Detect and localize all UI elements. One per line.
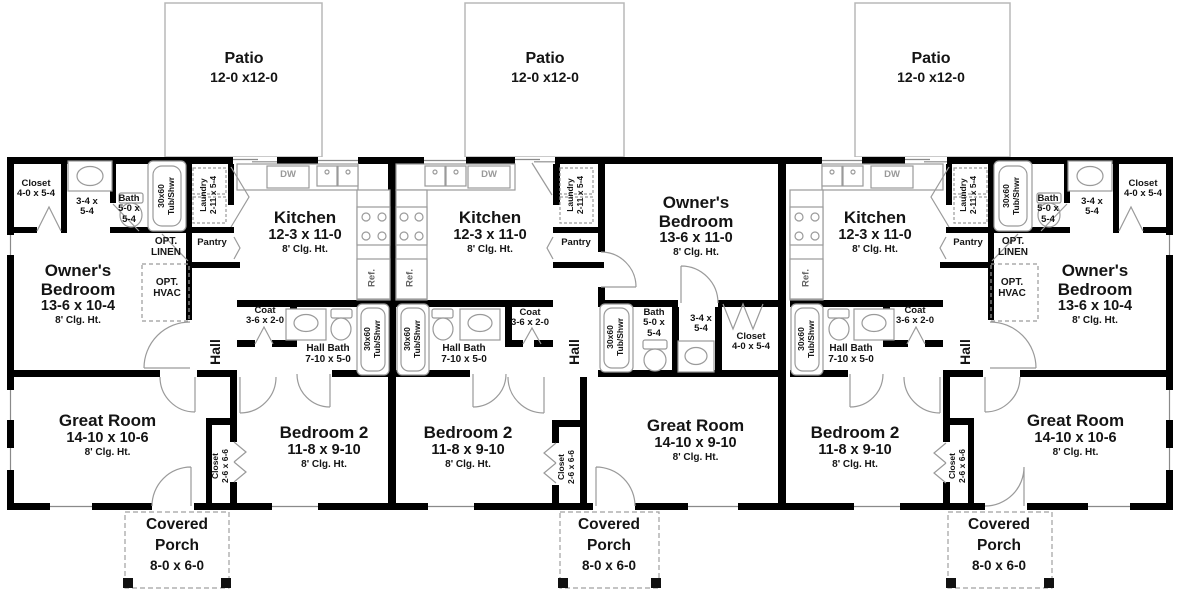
- patio-label-1: Patio 12-0 x12-0: [184, 49, 304, 87]
- room-dim: 14-10 x 10-6: [998, 431, 1153, 447]
- room-clg: 8' Clg. Ht.: [16, 315, 140, 326]
- u2-vanity-label: 3-4 x 5-4: [680, 314, 722, 335]
- u3-bedroom2-label: Bedroom 2 11-8 x 9-10 8' Clg. Ht.: [793, 424, 917, 470]
- fixture-name: Ref.: [802, 269, 813, 287]
- room-clg: 8' Clg. Ht.: [998, 447, 1153, 458]
- room-clg: 8' Clg. Ht.: [1033, 315, 1157, 326]
- u1-opt-linen-label: OPT. LINEN: [144, 236, 188, 258]
- room-dim: 2-11 x 5-4: [209, 176, 219, 214]
- room-name: Owner's: [634, 194, 758, 213]
- floorplan: Patio 12-0 x12-0 Patio 12-0 x12-0 Patio …: [0, 0, 1180, 593]
- u3-ref-label: Ref.: [802, 269, 813, 287]
- room-dim: 12-3 x 11-0: [814, 228, 936, 244]
- room-dim: 5-4: [108, 215, 150, 225]
- room-name: Pantry: [552, 238, 600, 248]
- patio-label-2: Patio 12-0 x12-0: [485, 49, 605, 87]
- room-dim: 8-0 x 6-0: [125, 557, 229, 575]
- u1-great-room-label: Great Room 14-10 x 10-6 8' Clg. Ht.: [30, 412, 185, 458]
- room-name: Porch: [125, 536, 229, 557]
- room-dim: 12-3 x 11-0: [244, 228, 366, 244]
- room-dim: 5-4: [1027, 215, 1069, 225]
- opt: OPT.: [144, 236, 188, 247]
- u1-kitchen-label: Kitchen 12-3 x 11-0 8' Clg. Ht.: [244, 209, 366, 255]
- room-dim: 13-6 x 10-4: [1033, 299, 1157, 315]
- u1-hall-bath-label: Hall Bath 7-10 x 5-0: [294, 343, 362, 365]
- u2-great-room-label: Great Room 14-10 x 9-10 8' Clg. Ht.: [618, 417, 773, 463]
- room-dim: 14-10 x 9-10: [618, 436, 773, 452]
- room-dim: 5-4: [680, 324, 722, 334]
- patio-title: Patio: [184, 49, 304, 69]
- room-name: Bedroom: [1033, 281, 1157, 300]
- room-dim: 8-0 x 6-0: [558, 557, 660, 575]
- u1-bedroom2-label: Bedroom 2 11-8 x 9-10 8' Clg. Ht.: [262, 424, 386, 470]
- room-name: Pantry: [188, 238, 236, 248]
- room-dim: 13-6 x 10-4: [16, 299, 140, 315]
- opt: OPT.: [989, 277, 1035, 288]
- u2-ref-label: Ref.: [406, 269, 417, 287]
- u3-great-room-label: Great Room 14-10 x 10-6 8' Clg. Ht.: [998, 412, 1153, 458]
- u2-porch-label: Covered Porch 8-0 x 6-0: [558, 515, 660, 575]
- room-name: Hall Bath: [294, 343, 362, 354]
- fixture-name: Tub/Shwr: [1012, 177, 1022, 215]
- room-name: Bedroom 2: [406, 424, 530, 443]
- u3-opt-linen-label: OPT. LINEN: [991, 236, 1035, 258]
- patio-dim: 12-0 x12-0: [485, 69, 605, 87]
- u1-opt-hvac-label: OPT. HVAC: [144, 277, 190, 299]
- patio-dim: 12-0 x12-0: [871, 69, 991, 87]
- u2-hall-bath-label: Hall Bath 7-10 x 5-0: [430, 343, 498, 365]
- u2-hall-label: Hall: [566, 339, 582, 365]
- room-dim: 8-0 x 6-0: [946, 557, 1052, 575]
- room-dim: 7-10 x 5-0: [430, 354, 498, 365]
- u3-kitchen-label: Kitchen 12-3 x 11-0 8' Clg. Ht.: [814, 209, 936, 255]
- room-dim: 4-0 x 5-4: [1116, 189, 1170, 199]
- room-dim: 4-0 x 5-4: [10, 189, 62, 199]
- hvac: HVAC: [144, 288, 190, 299]
- room-dim: 2-6 x 6-6: [958, 449, 968, 483]
- room-name: Porch: [558, 536, 660, 557]
- patio-title: Patio: [871, 49, 991, 69]
- u2-bedroom2-closet-label: Closet 2-6 x 6-6: [557, 450, 577, 484]
- patio-label-3: Patio 12-0 x12-0: [871, 49, 991, 87]
- u2-laundry-label: Laundry 2-11 x 5-4: [566, 176, 586, 214]
- linen: LINEN: [991, 247, 1035, 258]
- room-dim: 2-11 x 5-4: [969, 176, 979, 214]
- fixture-name: Tub/Shwr: [373, 320, 383, 358]
- room-name: Bedroom 2: [262, 424, 386, 443]
- room-clg: 8' Clg. Ht.: [618, 452, 773, 463]
- u1-laundry-label: Laundry 2-11 x 5-4: [199, 176, 219, 214]
- u1-vanity-label: 3-4 x 5-4: [64, 197, 110, 218]
- u3-pantry-label: Pantry: [944, 238, 992, 248]
- u2-owner-closet-label: Closet 4-0 x 5-4: [724, 332, 778, 353]
- room-name: Covered: [125, 515, 229, 536]
- u1-owner-closet-label: Closet 4-0 x 5-4: [10, 179, 62, 200]
- patio-title: Patio: [485, 49, 605, 69]
- fixture-name: Tub/Shwr: [413, 320, 423, 358]
- fixture-name: Tub/Shwr: [167, 177, 177, 215]
- room-dim: 11-8 x 9-10: [793, 443, 917, 459]
- u3-bath-label: Bath 5-0 x 5-4: [1027, 194, 1069, 225]
- u3-coat-label: Coat 3-6 x 2-0: [889, 306, 941, 327]
- room-name: Porch: [946, 536, 1052, 557]
- u3-bedroom2-closet-label: Closet 2-6 x 6-6: [948, 449, 968, 483]
- room-name: Pantry: [944, 238, 992, 248]
- fixture-name: DW: [467, 170, 511, 180]
- room-dim: 5-4: [1069, 207, 1115, 217]
- u3-opt-hvac-label: OPT. HVAC: [989, 277, 1035, 299]
- room-name: Kitchen: [814, 209, 936, 228]
- hvac: HVAC: [989, 288, 1035, 299]
- fixture-name: Ref.: [406, 269, 417, 287]
- room-name: Covered: [946, 515, 1052, 536]
- room-name: Hall Bath: [430, 343, 498, 354]
- fixture-name: Tub/Shwr: [807, 320, 817, 358]
- u3-owner-closet-label: Closet 4-0 x 5-4: [1116, 179, 1170, 200]
- linen: LINEN: [144, 247, 188, 258]
- room-name: Owner's: [16, 262, 140, 281]
- room-name: Bedroom: [16, 281, 140, 300]
- room-clg: 8' Clg. Ht.: [30, 447, 185, 458]
- u2-owner-tub-label: 30x60 Tub/Shwr: [606, 318, 626, 356]
- room-clg: 8' Clg. Ht.: [262, 459, 386, 470]
- room-name: Hall Bath: [817, 343, 885, 354]
- room-name: Hall: [957, 339, 973, 365]
- room-name: Hall: [207, 339, 223, 365]
- room-dim: 5-4: [634, 329, 674, 339]
- room-name: Great Room: [30, 412, 185, 431]
- room-dim: 14-10 x 10-6: [30, 431, 185, 447]
- room-name: Owner's: [1033, 262, 1157, 281]
- room-dim: 12-3 x 11-0: [429, 228, 551, 244]
- room-dim: 3-6 x 2-0: [889, 316, 941, 326]
- fixture-name: Tub/Shwr: [616, 318, 626, 356]
- room-dim: 2-11 x 5-4: [576, 176, 586, 214]
- room-name: Hall: [566, 339, 582, 365]
- patio-dim: 12-0 x12-0: [184, 69, 304, 87]
- room-dim: 7-10 x 5-0: [294, 354, 362, 365]
- fixture-name: Ref.: [368, 269, 379, 287]
- room-name: Kitchen: [244, 209, 366, 228]
- room-dim: 5-4: [64, 207, 110, 217]
- u3-hall-bath-label: Hall Bath 7-10 x 5-0: [817, 343, 885, 365]
- room-dim: 3-6 x 2-0: [239, 316, 291, 326]
- u3-vanity-label: 3-4 x 5-4: [1069, 197, 1115, 218]
- porch-posts: [123, 578, 1054, 588]
- u2-bedroom2-label: Bedroom 2 11-8 x 9-10 8' Clg. Ht.: [406, 424, 530, 470]
- u3-owner-tub-label: 30x60 Tub/Shwr: [1002, 177, 1022, 215]
- room-clg: 8' Clg. Ht.: [793, 459, 917, 470]
- fixture-name: DW: [870, 170, 914, 180]
- u2-kitchen-label: Kitchen 12-3 x 11-0 8' Clg. Ht.: [429, 209, 551, 255]
- room-name: Kitchen: [429, 209, 551, 228]
- room-name: Bedroom: [634, 213, 758, 232]
- u2-owners-bedroom-label: Owner's Bedroom 13-6 x 11-0 8' Clg. Ht.: [634, 194, 758, 258]
- room-clg: 8' Clg. Ht.: [634, 247, 758, 258]
- u2-hall-tub-label: 30x60 Tub/Shwr: [403, 320, 423, 358]
- room-dim: 11-8 x 9-10: [406, 443, 530, 459]
- u2-dw-label: DW: [467, 170, 511, 180]
- room-name: Bedroom 2: [793, 424, 917, 443]
- u1-owners-bedroom-label: Owner's Bedroom 13-6 x 10-4 8' Clg. Ht.: [16, 262, 140, 326]
- u1-owner-tub-label: 30x60 Tub/Shwr: [157, 177, 177, 215]
- fixture-name: DW: [266, 170, 310, 180]
- room-clg: 8' Clg. Ht.: [814, 244, 936, 255]
- u3-laundry-label: Laundry 2-11 x 5-4: [959, 176, 979, 214]
- room-dim: 2-6 x 6-6: [567, 450, 577, 484]
- room-name: Covered: [558, 515, 660, 536]
- u2-pantry-label: Pantry: [552, 238, 600, 248]
- opt: OPT.: [144, 277, 190, 288]
- room-clg: 8' Clg. Ht.: [429, 244, 551, 255]
- u3-hall-label: Hall: [957, 339, 973, 365]
- u3-dw-label: DW: [870, 170, 914, 180]
- room-dim: 3-6 x 2-0: [506, 318, 554, 328]
- u2-bath-label: Bath 5-0 x 5-4: [634, 308, 674, 339]
- room-clg: 8' Clg. Ht.: [244, 244, 366, 255]
- room-dim: 13-6 x 11-0: [634, 231, 758, 247]
- room-name: Great Room: [618, 417, 773, 436]
- u1-bath-label: Bath 5-0 x 5-4: [108, 194, 150, 225]
- room-clg: 8' Clg. Ht.: [406, 459, 530, 470]
- room-name: Great Room: [998, 412, 1153, 431]
- room-dim: 11-8 x 9-10: [262, 443, 386, 459]
- u1-bedroom2-closet-label: Closet 2-6 x 6-6: [211, 449, 231, 483]
- opt: OPT.: [991, 236, 1035, 247]
- room-dim: 2-6 x 6-6: [221, 449, 231, 483]
- room-dim: 4-0 x 5-4: [724, 342, 778, 352]
- u1-hall-label: Hall: [207, 339, 223, 365]
- u1-dw-label: DW: [266, 170, 310, 180]
- u1-pantry-label: Pantry: [188, 238, 236, 248]
- u3-porch-label: Covered Porch 8-0 x 6-0: [946, 515, 1052, 575]
- u3-hall-tub-label: 30x60 Tub/Shwr: [797, 320, 817, 358]
- u1-ref-label: Ref.: [368, 269, 379, 287]
- u1-hall-tub-label: 30x60 Tub/Shwr: [363, 320, 383, 358]
- u2-coat-label: Coat 3-6 x 2-0: [506, 308, 554, 329]
- u3-owners-bedroom-label: Owner's Bedroom 13-6 x 10-4 8' Clg. Ht.: [1033, 262, 1157, 326]
- room-dim: 7-10 x 5-0: [817, 354, 885, 365]
- u1-coat-label: Coat 3-6 x 2-0: [239, 306, 291, 327]
- u1-porch-label: Covered Porch 8-0 x 6-0: [125, 515, 229, 575]
